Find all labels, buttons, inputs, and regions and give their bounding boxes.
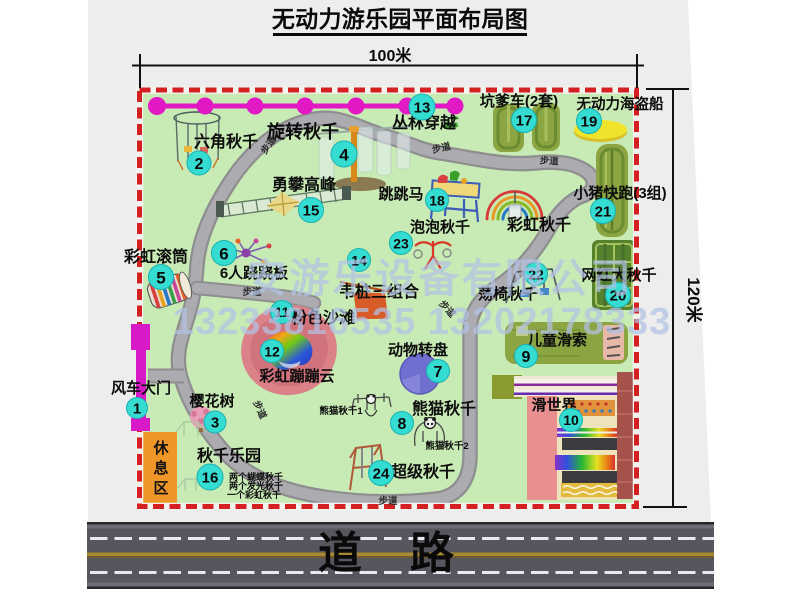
- svg-text:坑爹车(2套): 坑爹车(2套): [480, 92, 558, 110]
- svg-text:18: 18: [429, 193, 445, 209]
- svg-text:10: 10: [563, 412, 579, 428]
- svg-text:彩虹滚筒: 彩虹滚筒: [123, 247, 188, 266]
- svg-text:17: 17: [516, 113, 533, 130]
- svg-text:动物转盘: 动物转盘: [388, 341, 448, 359]
- svg-text:120米: 120米: [684, 277, 704, 323]
- svg-text:19: 19: [581, 114, 598, 131]
- svg-text:23: 23: [393, 236, 409, 252]
- svg-text:樱花树: 樱花树: [189, 392, 234, 410]
- svg-text:熊猫秋千2: 熊猫秋千2: [425, 440, 468, 452]
- svg-text:秋千乐园: 秋千乐园: [197, 446, 261, 465]
- svg-text:区: 区: [153, 480, 168, 497]
- svg-text:16: 16: [202, 470, 219, 487]
- svg-text:熊猫秋千1: 熊猫秋千1: [319, 405, 363, 417]
- svg-text:道: 道: [318, 529, 362, 578]
- svg-text:15: 15: [303, 203, 320, 220]
- svg-text:7: 7: [434, 364, 443, 381]
- svg-text:熊猫秋千: 熊猫秋千: [412, 399, 476, 418]
- svg-text:安游乐设备有限公司: 安游乐设备有限公司: [247, 257, 634, 301]
- svg-text:路: 路: [410, 529, 455, 578]
- svg-text:风车大门: 风车大门: [111, 379, 171, 397]
- svg-text:超级秋千: 超级秋千: [390, 462, 455, 481]
- svg-text:一个彩虹秋千: 一个彩虹秋千: [227, 489, 281, 500]
- svg-text:6: 6: [219, 245, 228, 264]
- svg-text:彩虹秋千: 彩虹秋千: [506, 215, 571, 234]
- svg-text:100米: 100米: [369, 46, 413, 65]
- svg-text:13: 13: [414, 100, 431, 117]
- svg-text:4: 4: [339, 146, 349, 165]
- svg-text:5: 5: [156, 269, 165, 288]
- svg-text:旋转秋千: 旋转秋千: [266, 121, 339, 142]
- svg-text:息: 息: [153, 459, 168, 477]
- svg-text:跳跳马: 跳跳马: [378, 185, 423, 203]
- svg-text:步道: 步道: [378, 495, 398, 507]
- svg-text:9: 9: [522, 349, 531, 366]
- svg-text:无动力游乐园平面布局图: 无动力游乐园平面布局图: [272, 6, 528, 32]
- svg-text:3: 3: [211, 415, 219, 432]
- svg-text:泡泡秋千: 泡泡秋千: [410, 218, 470, 236]
- svg-text:8: 8: [398, 416, 407, 433]
- svg-text:2: 2: [195, 156, 204, 173]
- svg-text:勇攀高峰: 勇攀高峰: [272, 175, 337, 194]
- svg-text:12: 12: [264, 344, 280, 360]
- svg-text:六角秋千: 六角秋千: [194, 132, 258, 151]
- svg-text:1: 1: [133, 401, 141, 418]
- svg-text:彩虹蹦蹦云: 彩虹蹦蹦云: [258, 367, 334, 385]
- svg-text:21: 21: [595, 204, 612, 221]
- svg-text:24: 24: [373, 466, 390, 483]
- svg-text:13233816535 13202178333: 13233816535 13202178333: [173, 301, 672, 343]
- svg-text:步道: 步道: [539, 154, 559, 167]
- svg-text:小猪快跑(3组): 小猪快跑(3组): [573, 184, 666, 202]
- svg-text:休: 休: [152, 439, 169, 457]
